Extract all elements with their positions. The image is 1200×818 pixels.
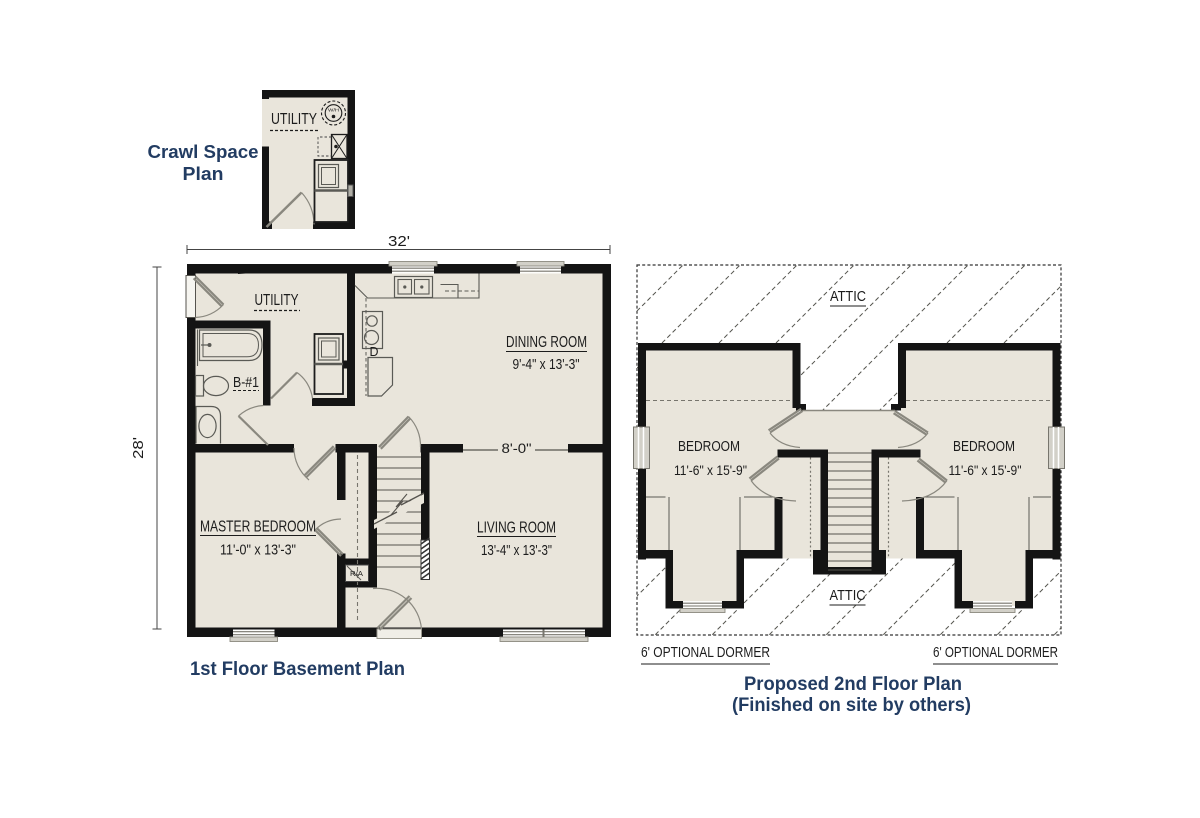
svg-text:Plan: Plan [183, 164, 224, 184]
svg-text:11'-0" x 13'-3": 11'-0" x 13'-3" [220, 543, 296, 559]
svg-text:32': 32' [388, 233, 410, 250]
svg-text:6' OPTIONAL DORMER: 6' OPTIONAL DORMER [641, 645, 770, 661]
svg-text:11'-6" x 15'-9": 11'-6" x 15'-9" [674, 463, 747, 478]
svg-text:UTILITY: UTILITY [271, 111, 317, 128]
svg-text:Crawl Space: Crawl Space [148, 142, 259, 162]
svg-text:6' OPTIONAL DORMER: 6' OPTIONAL DORMER [933, 645, 1058, 661]
svg-text:11'-6" x 15'-9": 11'-6" x 15'-9" [949, 463, 1022, 478]
svg-text:28': 28' [130, 437, 147, 459]
svg-text:Proposed 2nd Floor Plan: Proposed 2nd Floor Plan [744, 674, 962, 695]
svg-text:MASTER BEDROOM: MASTER BEDROOM [200, 519, 316, 536]
svg-text:9'-4" x 13'-3": 9'-4" x 13'-3" [513, 357, 580, 373]
svg-text:1st Floor Basement Plan: 1st Floor Basement Plan [190, 659, 405, 680]
svg-text:ATTIC: ATTIC [830, 588, 866, 604]
svg-text:ATTIC: ATTIC [830, 289, 866, 305]
svg-text:DINING ROOM: DINING ROOM [506, 334, 587, 351]
svg-text:UTILITY: UTILITY [255, 292, 299, 309]
svg-text:BEDROOM: BEDROOM [678, 439, 740, 455]
svg-text:8'-0": 8'-0" [502, 441, 532, 456]
svg-text:BEDROOM: BEDROOM [953, 439, 1015, 455]
svg-text:LIVING ROOM: LIVING ROOM [477, 520, 556, 537]
svg-text:13'-4" x 13'-3": 13'-4" x 13'-3" [481, 543, 552, 559]
svg-text:R/A: R/A [350, 571, 363, 578]
svg-text:(Finished on site by others): (Finished on site by others) [732, 695, 971, 716]
svg-text:B-#1: B-#1 [233, 375, 259, 391]
svg-text:W/H: W/H [328, 108, 340, 114]
